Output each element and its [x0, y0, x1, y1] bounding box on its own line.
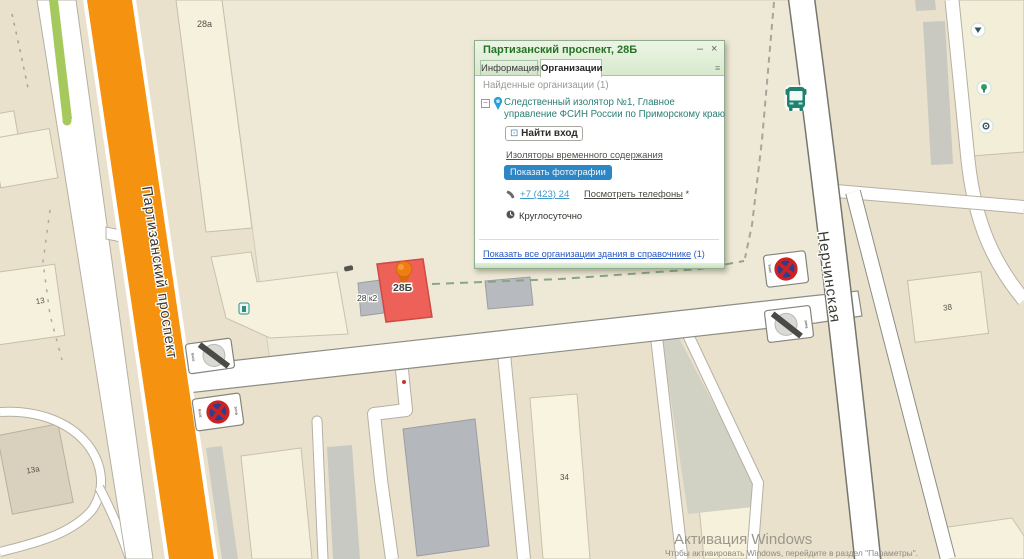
svg-text:13: 13	[35, 296, 46, 306]
svg-text:38: 38	[943, 302, 953, 312]
svg-text:34: 34	[560, 473, 569, 482]
svg-text:28а: 28а	[197, 19, 212, 29]
svg-text:28Б: 28Б	[393, 282, 413, 294]
svg-text:28 к2: 28 к2	[357, 293, 378, 303]
